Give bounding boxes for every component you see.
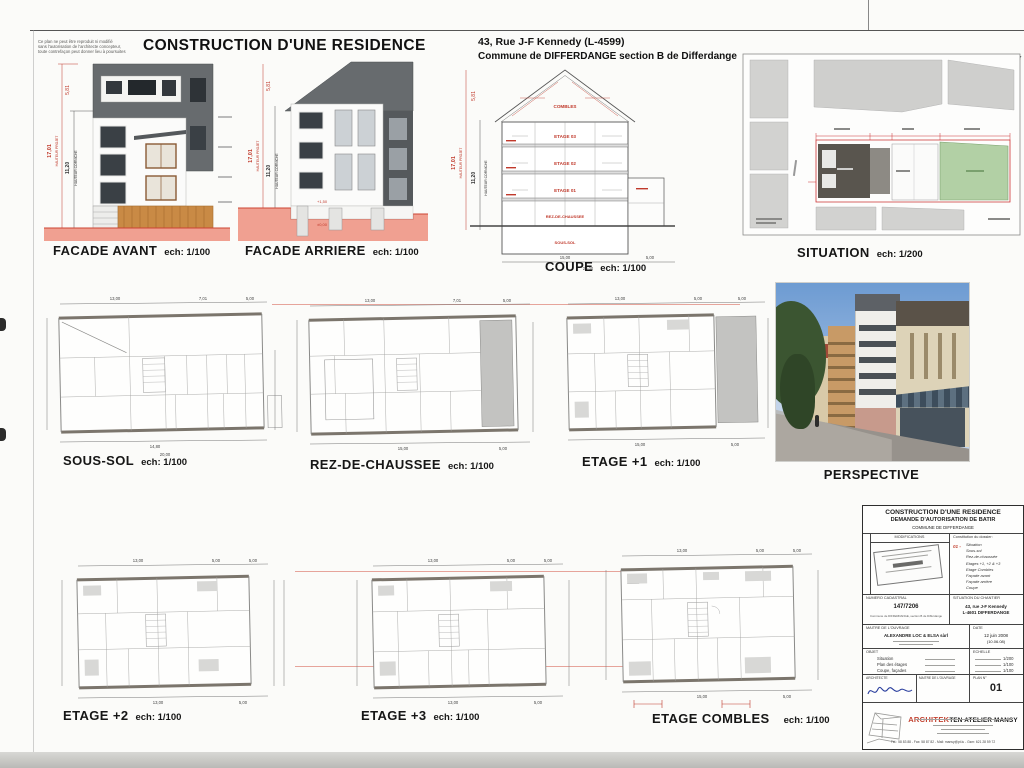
dim: 5,00 <box>503 298 512 303</box>
tb-modifications-label: MODIFICATIONS <box>871 535 948 539</box>
sheet-top-border <box>30 30 1024 31</box>
dim: 5,00 <box>534 700 543 705</box>
tb-contact: Tél.: 58 83 88 - Fax: 58 87 82 - Mail: m… <box>863 740 1023 744</box>
dim-total-label: HAUTEUR PROJET <box>256 141 260 172</box>
dim-roof: 5,81 <box>266 81 272 91</box>
tb-objet-row3: Coupe, façades <box>877 668 906 673</box>
facade-avant-label: FACADE AVANTech: 1/100 <box>53 242 210 260</box>
tb-maitre2-label: MAITRE DE L'OUVRAGE <box>919 676 956 680</box>
situation-drawing <box>742 52 1022 237</box>
dim: 14,80 <box>150 444 161 449</box>
punch-hole-bottom <box>0 428 6 441</box>
architect-signature <box>866 682 914 700</box>
photo-tree2 <box>780 354 815 429</box>
coupe-dim-2: 5,00 <box>646 255 655 260</box>
rdc-drawing: 13,00 7,01 5,00 <box>285 292 545 460</box>
dim: 13,00 <box>153 700 164 705</box>
dim: 13,00 <box>448 700 459 705</box>
municipal-stamp <box>873 544 943 586</box>
etage2-drawing: 13,00 5,00 5,00 <box>48 552 298 707</box>
tb-constitution-label: Constitution du dossier: <box>953 535 993 539</box>
tb-cadastral-label: NUMERO CADASTRAL <box>866 596 907 600</box>
site-address: 43, Rue J-F Kennedy (L-4599) <box>478 36 624 48</box>
sous-sol-label: SOUS-SOLech: 1/100 <box>63 452 187 470</box>
tb-maitre-label: MAITRE DE L'OUVRAGE <box>866 626 910 630</box>
dim-total: 17,01 <box>47 144 53 158</box>
title-block: CONSTRUCTION D'UNE RESIDENCE DEMANDE D'A… <box>862 505 1024 750</box>
combles-label: ETAGE COMBLESech: 1/100 <box>652 710 830 728</box>
dossier-item: Etages +1, +2 & +3 <box>966 561 1000 567</box>
tb-date-value: 12 juin 2008 <box>970 633 1022 638</box>
photo-pedestrian <box>815 415 819 427</box>
dim-roof: 5,81 <box>65 85 71 95</box>
view-etage1: 13,00 5,00 5,00 <box>550 290 785 455</box>
tb-maitre-subline <box>893 641 939 642</box>
coupe-floor-combles: COMBLES <box>554 104 577 109</box>
view-facade-arriere: 5,81 17,01 HAUTEUR PROJET 11,20 HAUTEUR … <box>233 56 433 241</box>
situation-label: SITUATIONech: 1/200 <box>797 244 923 262</box>
dim-corniche: 11,20 <box>266 165 272 177</box>
coupe-floor-soussol: SOUS-SOL <box>555 240 576 245</box>
tb-echelle-label: ECHELLE <box>973 650 990 654</box>
tb-chantier-line1: 43, rue J-F Kennedy <box>950 604 1022 609</box>
perspective-label: PERSPECTIVE <box>775 466 968 484</box>
dim: 13,00 <box>615 296 626 301</box>
dim: 5,00 <box>249 558 258 563</box>
dim: 13,00 <box>133 558 144 563</box>
perspective-photo <box>775 282 970 462</box>
dim-corniche-label: HAUTEUR CORNICHE <box>275 153 279 189</box>
photo-project-roof <box>855 294 899 312</box>
tb-chantier-line2: L-4601 DIFFERDANGE <box>950 610 1022 615</box>
sheet-title: CONSTRUCTION D'UNE RESIDENCE <box>143 37 426 55</box>
tb-date-sub: (10.06.08) <box>970 639 1022 644</box>
tb-objet-row1: Situation <box>877 656 893 661</box>
view-perspective: PERSPECTIVE <box>775 282 970 462</box>
tb-planno-value: 01 <box>970 682 1022 694</box>
tb-title1: CONSTRUCTION D'UNE RESIDENCE <box>863 509 1023 516</box>
coupe-floor-rdc: REZ-DE-CHAUSSEE <box>546 214 585 219</box>
etage3-drawing: 13,00 5,00 5,00 <box>343 552 593 707</box>
dim-corniche-label: HAUTEUR CORNICHE <box>484 160 488 196</box>
dim: 13,00 <box>110 296 121 301</box>
dim-corniche: 11,20 <box>471 172 477 184</box>
etage1-label: ETAGE +1ech: 1/100 <box>582 453 700 471</box>
coupe-floor-etage1: ETAGE 01 <box>554 188 576 193</box>
tb-architecte-label: ARCHITECTE <box>866 676 888 680</box>
tb-chantier-label: SITUATION DU CHANTIER <box>953 596 1000 600</box>
sheet-left-border <box>33 30 34 752</box>
photo-building-right-windows <box>900 333 966 379</box>
rdc-label: REZ-DE-CHAUSSEEech: 1/100 <box>310 456 494 474</box>
tb-maitre-subline <box>899 644 933 645</box>
tb-objet-label: OBJET <box>866 650 878 654</box>
dim-corniche-label: HAUTEUR CORNICHE <box>74 150 78 186</box>
sous-sol-drawing: 13,00 7,01 5,00 <box>35 290 285 458</box>
tb-constitution-no: 01 - <box>953 544 961 549</box>
tb-maitre-value: ALEXANDRE LOC & ELSA sàrl <box>863 633 969 638</box>
dim: 5,00 <box>499 446 508 451</box>
tb-date-label: DATE <box>973 626 983 630</box>
tb-planno-label: PLAN N° <box>973 676 987 680</box>
tb-objet-row2: Plan des étages <box>877 662 907 667</box>
dim: 5,00 <box>694 296 703 301</box>
dim-total: 17,01 <box>451 156 457 170</box>
coupe-drawing: 5,81 17,01 HAUTEUR PROJET 11,20 HAUTEUR … <box>440 58 690 273</box>
view-facade-avant: 5,81 17,01 HAUTEUR PROJET 11,20 HAUTEUR … <box>38 56 238 241</box>
tb-constitution-list: Situation Sous-sol Rez-de-chaussée Etage… <box>966 542 1000 592</box>
red-detail-marks <box>634 700 750 708</box>
view-rdc: 13,00 7,01 5,00 <box>285 292 545 460</box>
dim-roof: 5,81 <box>471 91 477 101</box>
dim: 15,00 <box>697 694 708 699</box>
mark-zero: ±0,00 <box>317 222 328 227</box>
dim: 5,00 <box>738 296 747 301</box>
mark-high: +1,50 <box>317 199 328 204</box>
photo-project-windows <box>859 315 896 400</box>
view-sous-sol: 13,00 7,01 5,00 <box>35 290 285 458</box>
dim-total: 17,01 <box>248 149 254 163</box>
dim: 5,00 <box>239 700 248 705</box>
dim-corniche: 11,20 <box>65 162 71 174</box>
view-situation: SITUATIONech: 1/200 <box>742 52 1022 237</box>
combles-drawing: 13,00 5,00 5,00 <box>592 542 842 710</box>
plan-sheet: Ce plan ne peut être reproduit ni modifi… <box>0 0 1024 768</box>
dim-total-label: HAUTEUR PROJET <box>55 136 59 167</box>
tb-echelle-3: 1/100 <box>1003 668 1013 673</box>
dim: 5,00 <box>544 558 553 563</box>
dossier-item: Coupe <box>966 585 1000 591</box>
dim: 5,00 <box>783 694 792 699</box>
etage2-label: ETAGE +2ech: 1/100 <box>63 707 181 725</box>
atelier-sketch-logo <box>865 705 907 745</box>
dossier-item: Rez-de-chaussée <box>966 554 1000 560</box>
dim: 7,01 <box>453 298 462 303</box>
dim: 13,00 <box>428 558 439 563</box>
tb-echelle-2: 1/100 <box>1003 662 1013 667</box>
dim-total-label: HAUTEUR PROJET <box>459 148 463 179</box>
dim: 13,00 <box>365 298 376 303</box>
tb-echelle-1: 1/200 <box>1003 656 1013 661</box>
dim: 15,00 <box>398 446 409 451</box>
tb-title2: DEMANDE D'AUTORISATION DE BATIR <box>863 517 1023 523</box>
photo-building-right-roof <box>896 301 969 326</box>
view-etage2: 13,00 5,00 5,00 <box>48 552 298 707</box>
facade-arriere-drawing: 5,81 17,01 HAUTEUR PROJET 11,20 HAUTEUR … <box>233 56 433 241</box>
tb-cadastral-value: 147/7206 <box>863 604 949 610</box>
copyright-disclaimer: Ce plan ne peut être reproduit ni modifi… <box>38 39 158 55</box>
coupe-floor-etage3: ETAGE 03 <box>554 134 576 139</box>
dim: 7,01 <box>199 296 208 301</box>
punch-hole-top <box>0 318 6 331</box>
dim: 5,00 <box>246 296 255 301</box>
coupe-label: COUPEech: 1/100 <box>545 258 646 276</box>
scan-shadow <box>0 752 1024 768</box>
etage1-drawing: 13,00 5,00 5,00 <box>550 290 785 455</box>
coupe-floor-etage2: ETAGE 02 <box>554 161 576 166</box>
dim: 5,00 <box>507 558 516 563</box>
tb-cadastral-sub: Commune de DIFFERDANGE, section B de Dif… <box>865 614 947 618</box>
tb-title3: COMMUNE DE DIFFERDANGE <box>863 525 1023 530</box>
dim: 5,00 <box>793 548 802 553</box>
facade-arriere-label: FACADE ARRIEREech: 1/100 <box>245 242 419 260</box>
etage3-label: ETAGE +3ech: 1/100 <box>361 707 479 725</box>
view-etage3: 13,00 5,00 5,00 <box>343 552 593 707</box>
dim: 13,00 <box>677 548 688 553</box>
sheet-corner-line <box>868 0 869 30</box>
facade-avant-drawing: 5,81 17,01 HAUTEUR PROJET 11,20 HAUTEUR … <box>38 56 238 241</box>
dim: 5,00 <box>212 558 221 563</box>
view-combles: 13,00 5,00 5,00 <box>592 542 842 710</box>
dim: 5,00 <box>756 548 765 553</box>
dim: 5,00 <box>731 442 740 447</box>
dim: 15,00 <box>635 442 646 447</box>
view-coupe: 5,81 17,01 HAUTEUR PROJET 11,20 HAUTEUR … <box>440 58 690 273</box>
